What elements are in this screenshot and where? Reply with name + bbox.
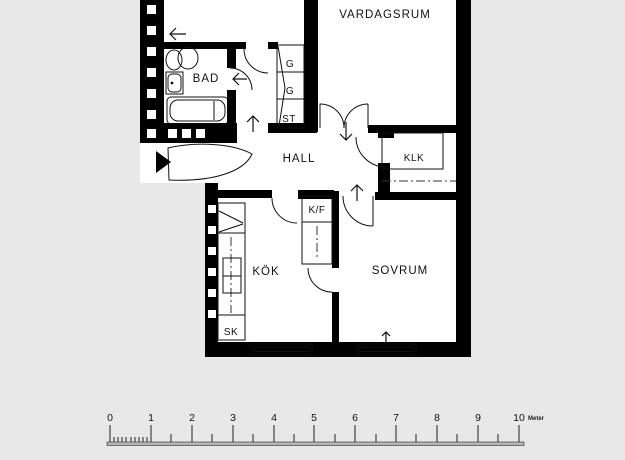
hatch-dash xyxy=(168,129,177,138)
room-label-vardagsrum: VARDAGSRUM xyxy=(339,9,431,21)
ruler-number: 4 xyxy=(271,412,277,424)
hatch-dash xyxy=(208,289,216,297)
hatch-dash xyxy=(196,129,205,138)
hatch-dash xyxy=(208,205,216,213)
hatch-dash xyxy=(147,89,156,98)
closet-label-g1: G xyxy=(286,59,294,70)
room-label-hall: HALL xyxy=(283,153,316,165)
hatch-dash xyxy=(147,5,156,14)
hatch-dash xyxy=(147,47,156,56)
room-label-klk: KLK xyxy=(404,153,424,164)
ruler-unit-label: Meter xyxy=(528,416,545,422)
floor-plan-svg: VARDAGSRUM BAD HALL KLK KÖK SOVRUM G G S… xyxy=(0,0,625,460)
hatch-dash xyxy=(208,247,216,255)
ruler-baseline xyxy=(107,442,524,446)
wall-kitchen-sovrum-lower xyxy=(332,292,339,344)
closet-label-g2: G xyxy=(286,86,294,97)
sink-drain-dot xyxy=(171,82,174,85)
ruler-number: 1 xyxy=(148,412,154,424)
ruler-number: 3 xyxy=(230,412,236,424)
floor-plan-image: VARDAGSRUM BAD HALL KLK KÖK SOVRUM G G S… xyxy=(0,0,625,460)
wall-klk-hinge-stub xyxy=(378,130,394,138)
fridge-label-kf: K/F xyxy=(308,205,325,216)
ruler-number: 5 xyxy=(311,412,317,424)
ruler-number: 8 xyxy=(434,412,440,424)
wall-kf-top xyxy=(298,190,334,199)
wall-bottom xyxy=(205,342,471,357)
hatch-dash xyxy=(208,310,216,318)
room-label-kok: KÖK xyxy=(252,266,279,278)
room-label-sovrum: SOVRUM xyxy=(372,265,428,277)
wall-right xyxy=(456,0,471,357)
wall-hall-bottom xyxy=(207,190,272,198)
wall-vardagsrum-left xyxy=(304,0,318,132)
hatch-dash xyxy=(147,26,156,35)
wall-passage-stub xyxy=(378,163,390,197)
wall-kitchen-sovrum-upper xyxy=(332,191,339,268)
hatch-dash xyxy=(147,68,156,77)
ruler-number: 9 xyxy=(475,412,481,424)
ruler-number: 6 xyxy=(352,412,358,424)
cabinet-label-sk: SK xyxy=(224,327,238,338)
hatch-dash xyxy=(147,110,156,119)
wall-bad-right-upper xyxy=(227,42,236,68)
ruler-number: 0 xyxy=(107,412,113,424)
hatch-dash xyxy=(147,129,156,138)
room-label-bad: BAD xyxy=(193,73,220,85)
hatch-dash xyxy=(182,129,191,138)
ruler-number: 2 xyxy=(189,412,195,424)
ruler-number: 10 xyxy=(513,412,525,424)
closet-label-st: ST xyxy=(282,114,296,125)
hatch-dash xyxy=(208,268,216,276)
hatch-dash xyxy=(208,226,216,234)
ruler-number: 7 xyxy=(393,412,399,424)
